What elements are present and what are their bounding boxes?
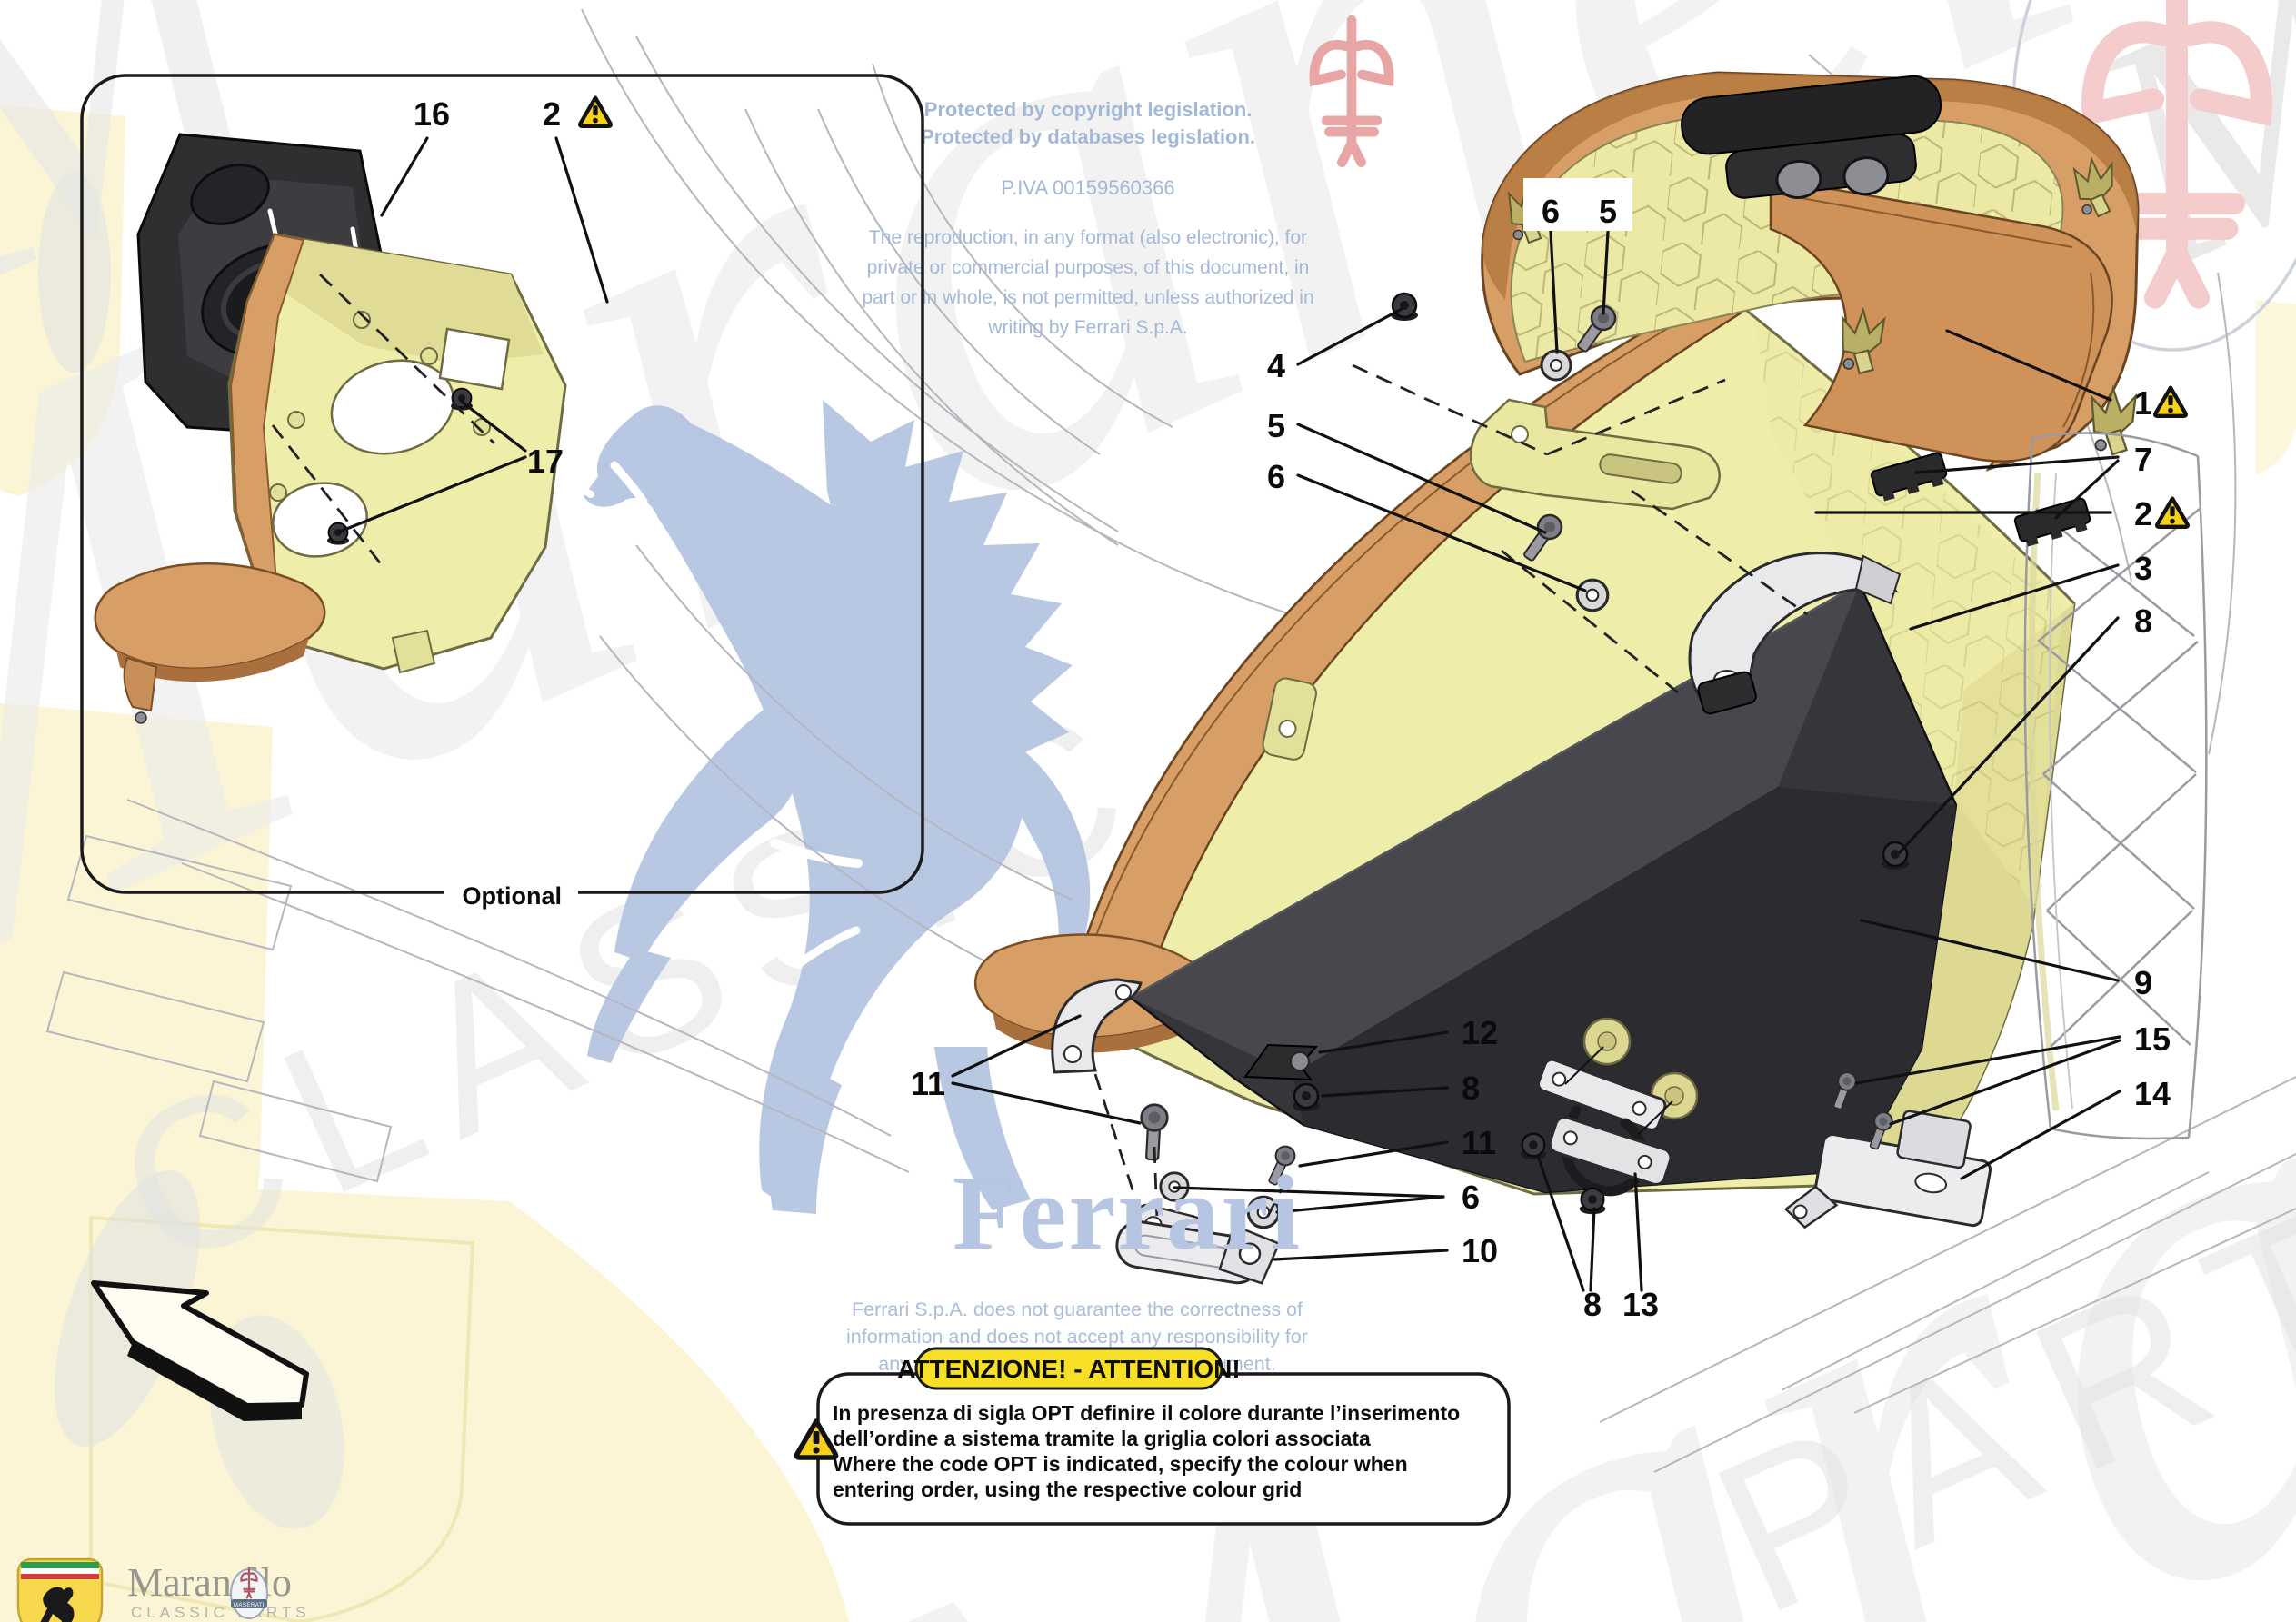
callout-box-6: 6 — [1542, 193, 1560, 230]
washer-6-upper — [1542, 351, 1571, 380]
callout-box-5: 5 — [1599, 193, 1617, 230]
copyright-para-1: The reproduction, in any format (also el… — [869, 227, 1307, 248]
parts-diagram-page: Maranello Maranello M M CLASSIC PARTS — [0, 0, 2296, 1622]
callout-1: 1 — [2134, 384, 2152, 422]
inset-screw-17b — [327, 523, 349, 545]
callout-17: 17 — [527, 443, 564, 480]
maserati-badge: MASERATI — [231, 1568, 267, 1618]
copyright-piva: P.IVA 00159560366 — [1001, 176, 1174, 199]
callout-2: 2 — [2134, 495, 2152, 532]
warning-icon-2 — [2157, 499, 2188, 527]
callout-8: 8 — [2134, 602, 2152, 640]
callout-11-left: 11 — [911, 1065, 945, 1102]
attention-line-4: entering order, using the respective col… — [833, 1478, 1302, 1501]
screw-8-bottom-left — [1521, 1134, 1547, 1160]
callout-3: 3 — [2134, 550, 2152, 587]
callout-12: 12 — [1462, 1014, 1498, 1051]
callout-7: 7 — [2134, 441, 2152, 478]
callout-5: 5 — [1267, 407, 1285, 444]
callout-8-bottom: 8 — [1583, 1286, 1602, 1323]
copyright-para-3: part or in whole, is not permitted, unle… — [862, 287, 1313, 308]
optional-label: Optional — [463, 882, 563, 910]
ferrari-shield-logo: Ferrari — [18, 1559, 102, 1622]
disclaimer-line-1: Ferrari S.p.A. does not guarantee the co… — [852, 1299, 1303, 1320]
ferrari-logo-watermark: Ferrari — [953, 1153, 1302, 1272]
warning-icon-1 — [2155, 388, 2186, 416]
callout-4: 4 — [1267, 347, 1285, 384]
copyright-line-1: Protected by copyright legislation. — [924, 98, 1253, 121]
attention-line-1: In presenza di sigla OPT definire il col… — [833, 1401, 1460, 1425]
attention-box: ATTENZIONE! - ATTENTION! In presenza di … — [796, 1348, 1509, 1524]
copyright-para-4: writing by Ferrari S.p.A. — [987, 317, 1187, 338]
callout-15: 15 — [2134, 1020, 2171, 1058]
callout-16: 16 — [414, 95, 450, 133]
attention-title: ATTENZIONE! - ATTENTION! — [897, 1355, 1240, 1383]
attention-line-2: dell’ordine a sistema tramite la griglia… — [833, 1427, 1371, 1450]
callout-10: 10 — [1462, 1232, 1498, 1269]
callout-6: 6 — [1267, 458, 1285, 495]
copyright-para-2: private or commercial purposes, of this … — [867, 257, 1310, 278]
screw-8-mid — [1293, 1084, 1320, 1111]
callout-11-mid: 11 — [1462, 1124, 1496, 1161]
callout-6-mid: 6 — [1462, 1179, 1480, 1216]
screw-4 — [1391, 294, 1418, 321]
callout-13: 13 — [1622, 1286, 1659, 1323]
screw-8-bottom-right — [1580, 1189, 1606, 1215]
maserati-badge-text: MASERATI — [234, 1603, 265, 1608]
callout-2-inset: 2 — [543, 95, 561, 133]
callout-9: 9 — [2134, 964, 2152, 1001]
callout-8-mid: 8 — [1462, 1070, 1480, 1107]
footer-brand-block: Ferrari Maranello CLASSIC PARTS MASERATI — [18, 1559, 311, 1622]
copyright-line-2: Protected by databases legislation. — [921, 125, 1255, 148]
attention-line-3: Where the code OPT is indicated, specify… — [833, 1452, 1408, 1476]
disclaimer-line-2: information and does not accept any resp… — [846, 1326, 1308, 1348]
footer-brand-sub: CLASSIC PARTS — [131, 1604, 311, 1621]
callout-14: 14 — [2134, 1075, 2171, 1112]
washer-6-lower — [1577, 580, 1608, 611]
